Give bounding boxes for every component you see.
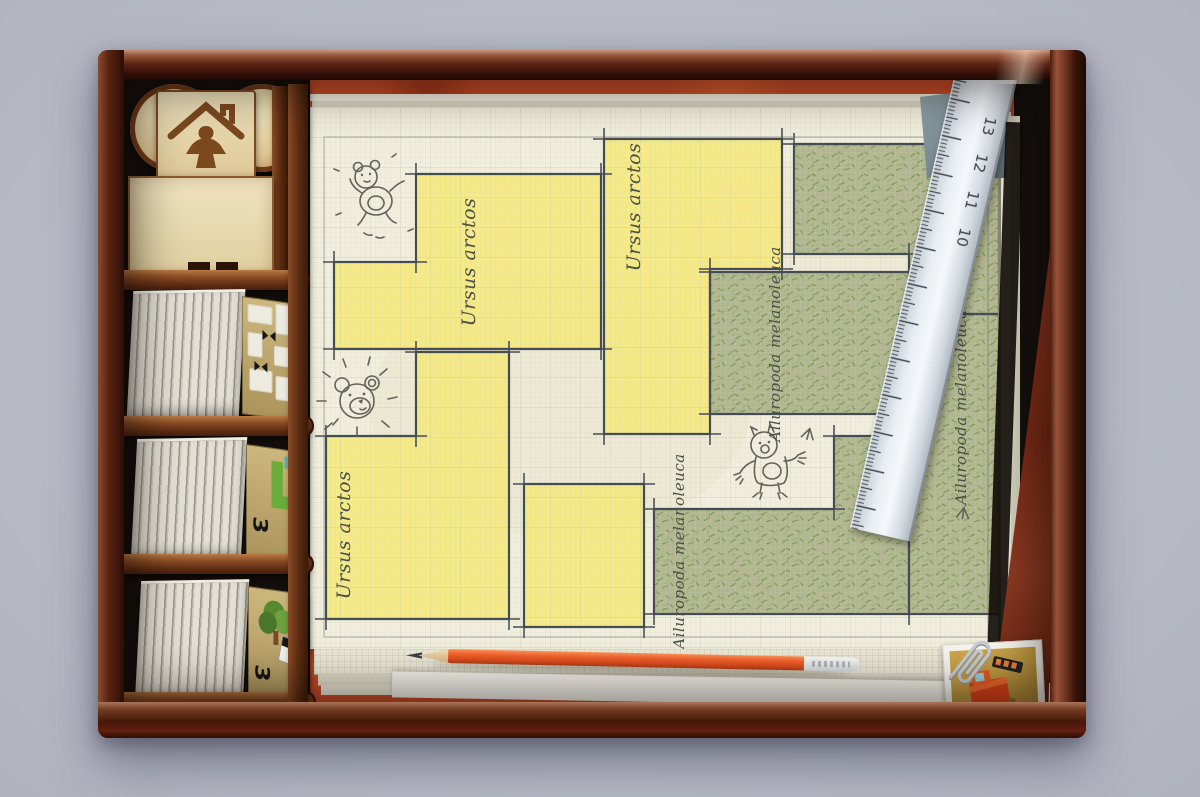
tile-stack-edges — [127, 289, 246, 420]
tile-number: 3 — [251, 663, 274, 683]
wooden-token-box — [128, 176, 274, 278]
wooden-rail — [124, 554, 310, 574]
tile-shape — [271, 461, 282, 497]
wooden-rail — [124, 692, 312, 702]
tile-shape — [248, 332, 263, 358]
bowtie-icon — [254, 361, 267, 373]
box-rim-top — [98, 50, 1086, 80]
wooden-insert-tray: 3 3 — [124, 78, 310, 702]
game-box-photo: Ursus arctos Ursus arctos Ursus arctos A… — [0, 0, 1200, 797]
enclosure-label: Ailuropoda melanoleuca — [670, 453, 688, 649]
token-holder-tower — [156, 90, 256, 182]
enclosure-label: Ursus arctos — [458, 198, 480, 327]
tile-stack-edges — [131, 437, 248, 562]
meeple-house-logo-icon — [161, 96, 251, 176]
tile-stack-edges — [135, 579, 250, 702]
pencil-wood-cone — [418, 648, 450, 663]
wooden-rail — [124, 270, 306, 290]
box-rim-left — [98, 50, 124, 738]
box-edge-highlight — [960, 50, 1086, 84]
wooden-rail — [124, 416, 310, 436]
bowtie-icon — [263, 330, 276, 342]
tile-shape — [248, 304, 273, 325]
enclosure-label: Ailuropoda melanoleuca — [766, 246, 784, 443]
enclosure-label: Ursus arctos — [623, 143, 645, 272]
tile-shape — [249, 368, 272, 393]
box-rim-right — [1050, 50, 1086, 738]
insert-right-wall — [288, 84, 308, 702]
sheet-edge — [310, 94, 1008, 101]
box-interior: Ursus arctos Ursus arctos Ursus arctos A… — [124, 78, 1050, 702]
box-rim-bottom — [98, 702, 1086, 738]
tile-number: 3 — [249, 515, 272, 535]
wooden-upright — [272, 86, 288, 276]
pencil-end-cap — [804, 657, 860, 672]
enclosure-label: Ursus arctos — [333, 471, 355, 600]
tree-trunk — [273, 631, 278, 646]
